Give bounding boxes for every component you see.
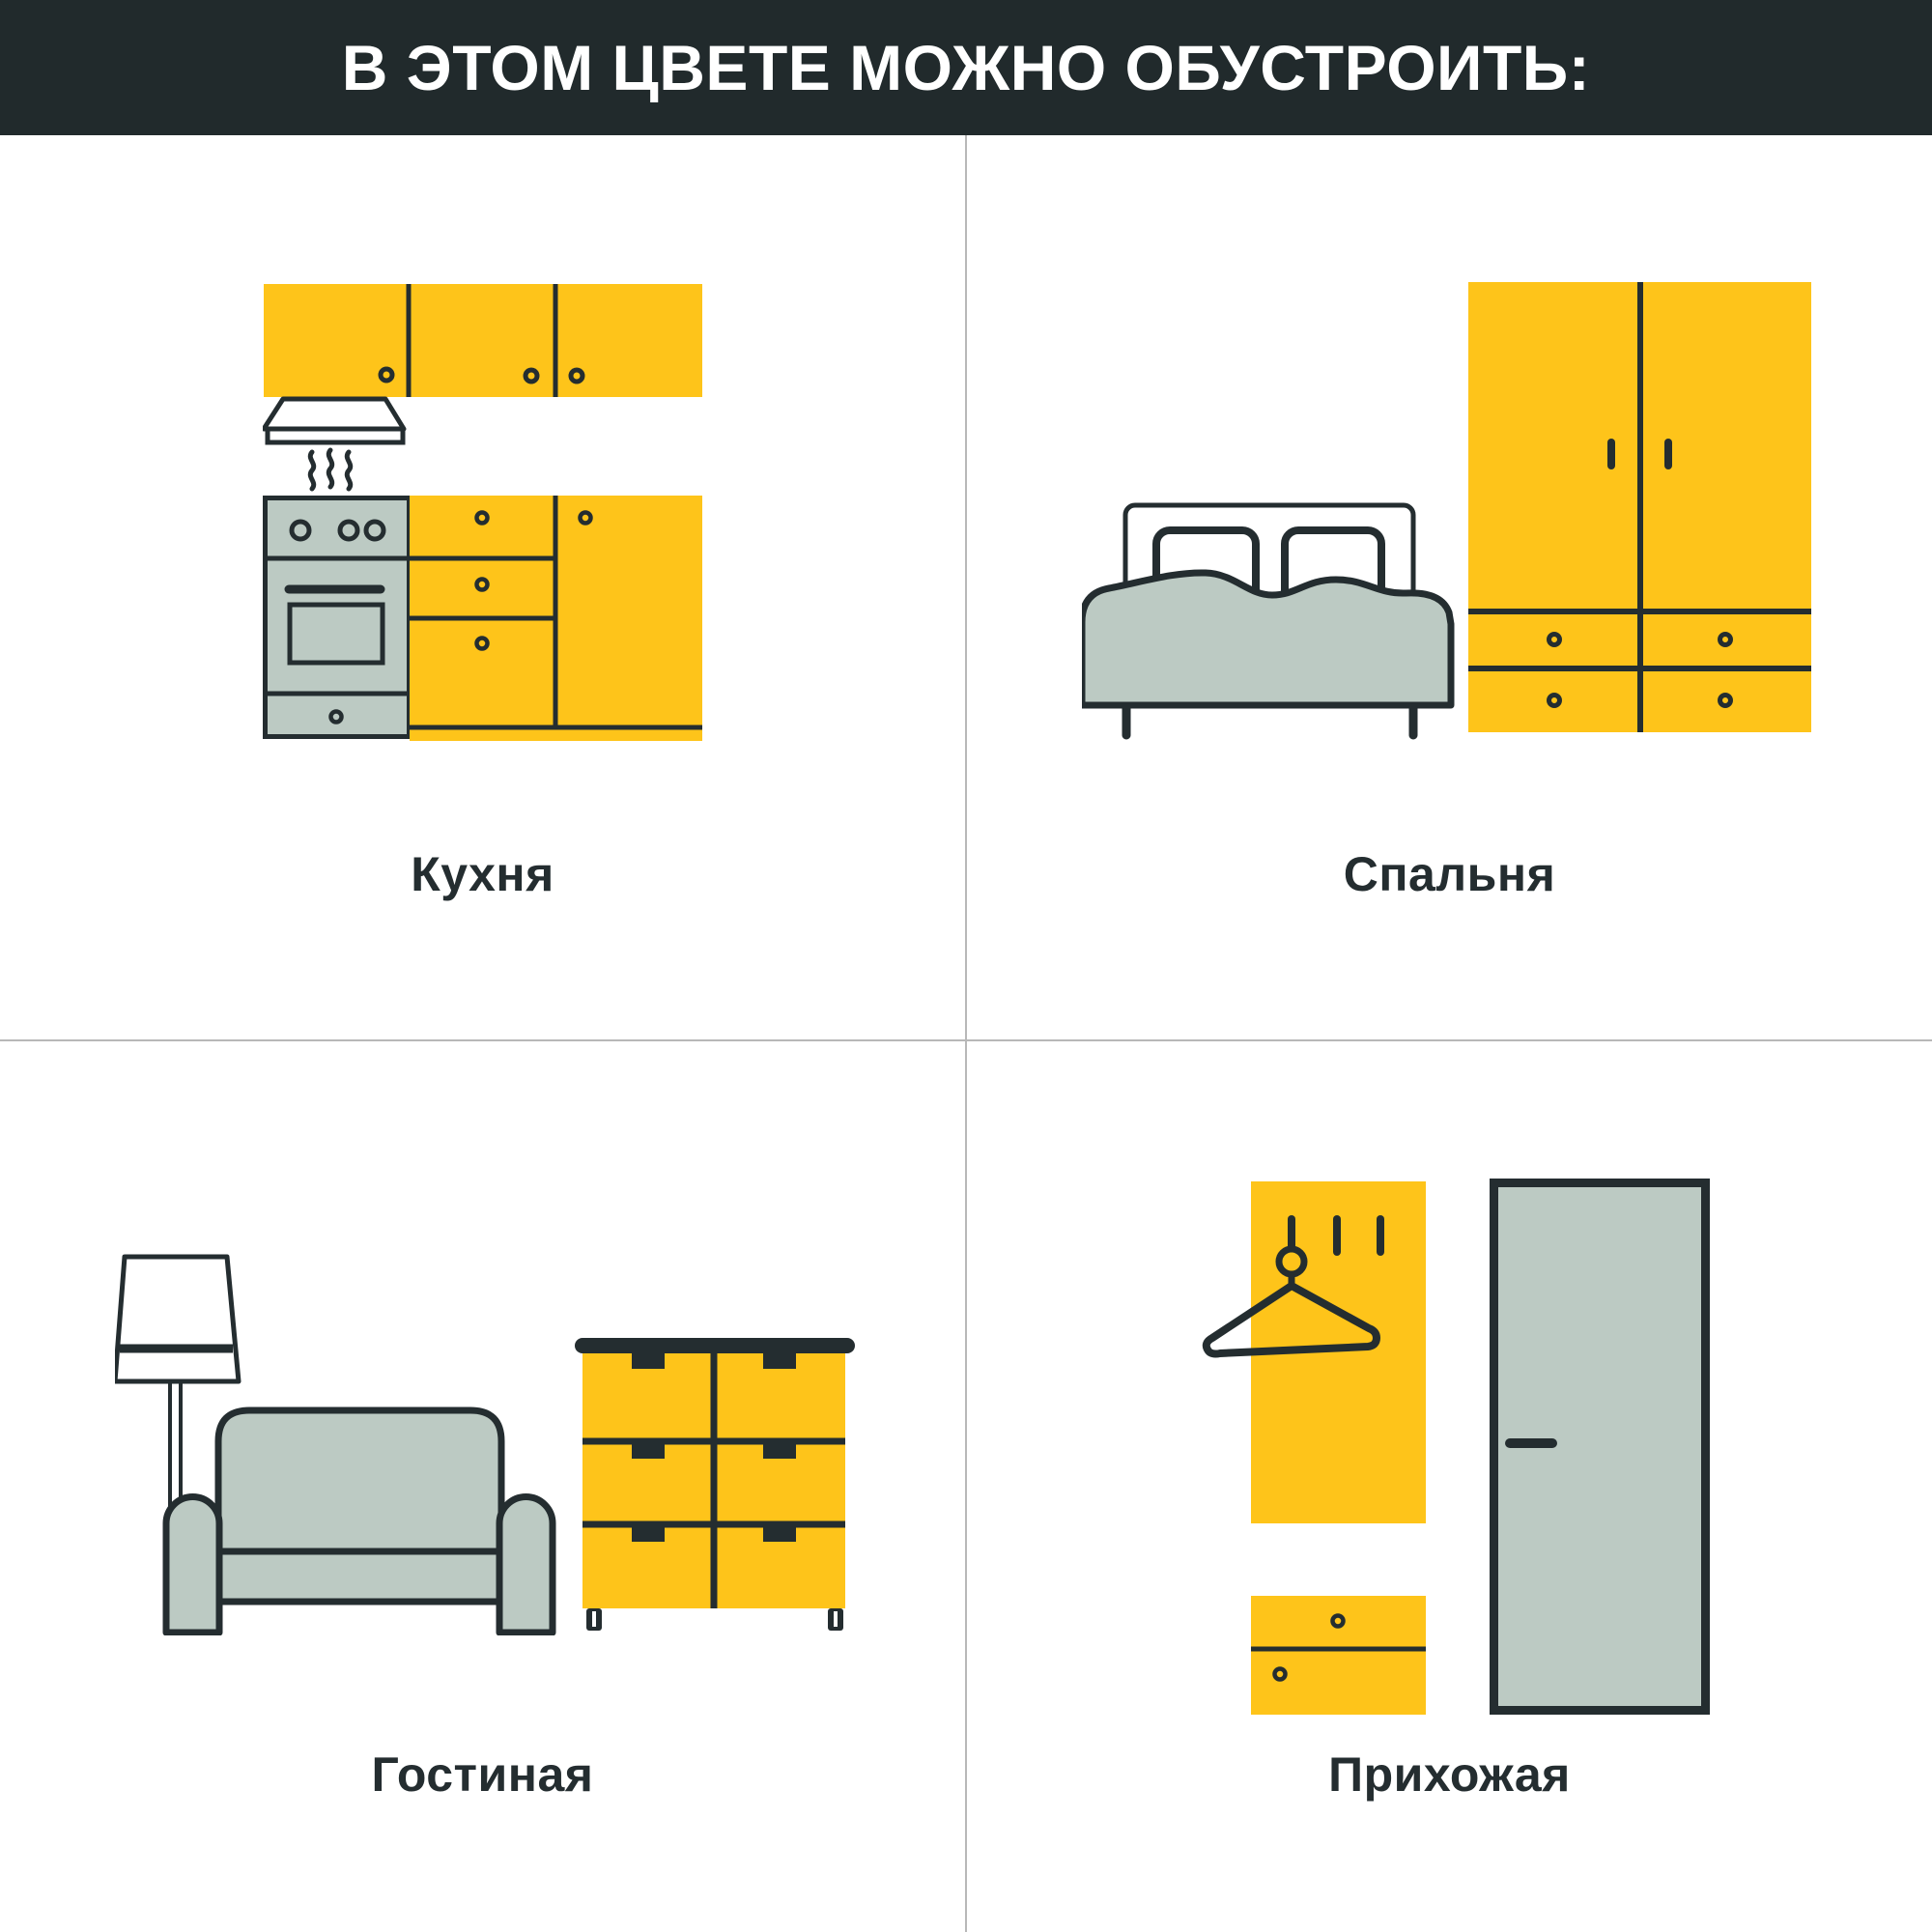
kitchen-icon (263, 282, 703, 742)
kitchen-upper-cabinets-icon (264, 284, 702, 397)
chest-of-drawers-icon (575, 1338, 855, 1631)
section-hallway: Прихожая (967, 1041, 1932, 1932)
door-icon (1494, 1183, 1706, 1711)
infographic-canvas: В ЭТОМ ЦВЕТЕ МОЖНО ОБУСТРОИТЬ: (0, 0, 1932, 1932)
room-label-hallway: Прихожая (967, 1747, 1932, 1803)
room-label-kitchen: Кухня (0, 846, 965, 902)
section-kitchen: Кухня (0, 135, 965, 1039)
shoe-cabinet-icon (1251, 1596, 1426, 1715)
hallway-icon (1201, 1179, 1715, 1716)
section-bedroom: Спальня (967, 135, 1932, 1039)
kitchen-lower-cabinets-icon (410, 496, 702, 741)
room-label-living-room: Гостиная (0, 1747, 965, 1803)
section-living-room: Гостиная (0, 1041, 965, 1932)
range-hood-icon (264, 399, 404, 489)
room-label-bedroom: Спальня (967, 846, 1932, 902)
bed-icon (1082, 505, 1451, 735)
coat-rack-icon (1207, 1181, 1426, 1523)
stove-icon (265, 498, 410, 737)
bedroom-icon (1082, 282, 1811, 740)
armchair-icon (166, 1410, 553, 1633)
header-bar: В ЭТОМ ЦВЕТЕ МОЖНО ОБУСТРОИТЬ: (0, 0, 1932, 135)
living-room-icon (115, 1254, 855, 1635)
page-title: В ЭТОМ ЦВЕТЕ МОЖНО ОБУСТРОИТЬ: (342, 31, 1590, 104)
wardrobe-icon (1468, 282, 1811, 732)
